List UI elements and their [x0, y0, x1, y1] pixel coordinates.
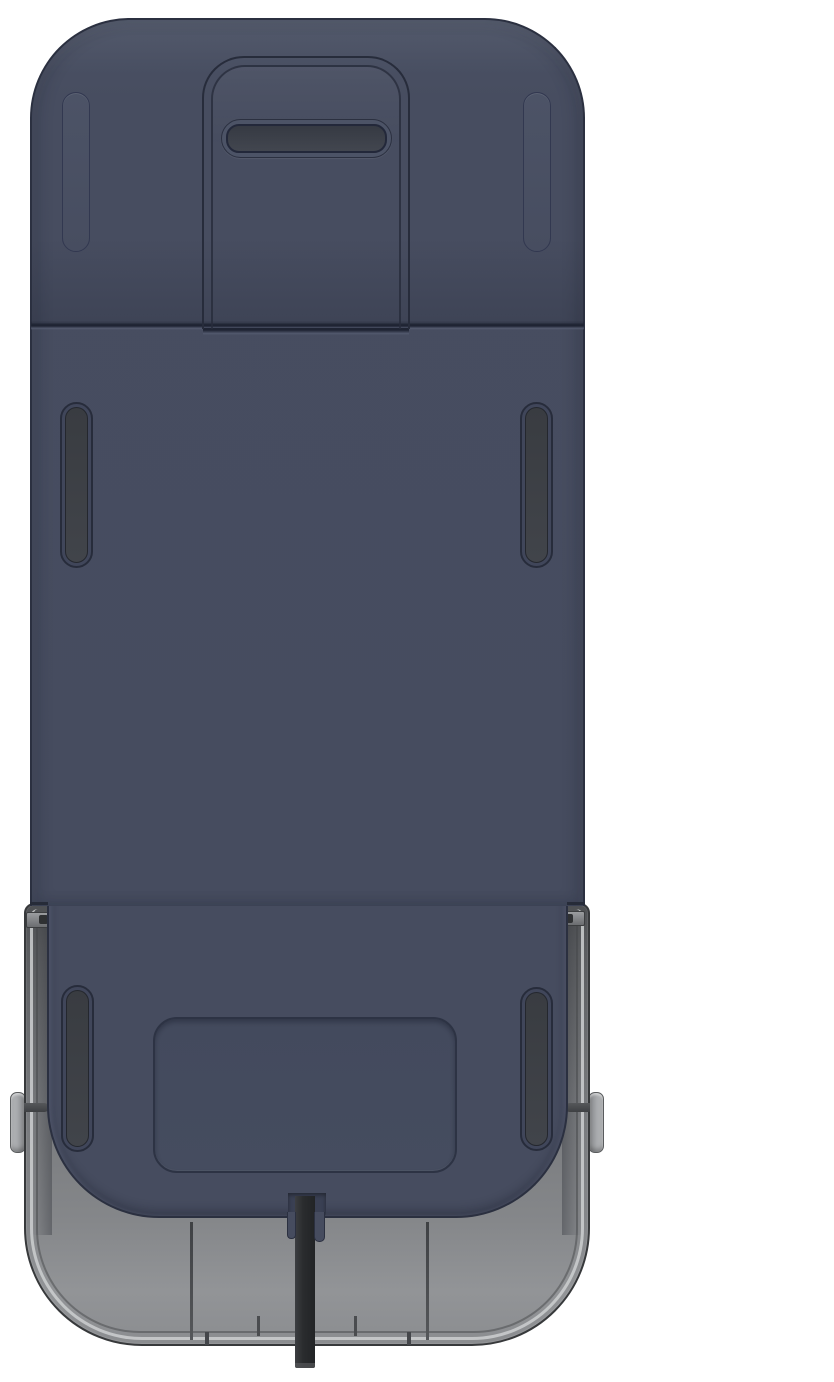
- cap-foot-left: [62, 92, 90, 252]
- vent-slot-bottom-left-opening: [66, 990, 89, 1147]
- vent-slot-top-right: [520, 402, 553, 568]
- tray-rim-tick-left: [205, 1332, 209, 1345]
- side-pin-left: [24, 1103, 49, 1112]
- handle-grip-ring: [221, 119, 392, 158]
- tray-front-seam-left: [190, 1222, 193, 1340]
- vent-slot-top-left: [60, 402, 93, 568]
- tray-rim-tick-right: [407, 1332, 411, 1345]
- vent-slot-top-left-opening: [65, 407, 88, 563]
- tray-front-notch-left: [257, 1316, 260, 1336]
- power-cable-tip: [295, 1363, 315, 1368]
- label-recess-panel: [153, 1017, 457, 1173]
- side-knob-right: [588, 1092, 604, 1153]
- vent-slot-bottom-left: [61, 985, 94, 1152]
- vent-slot-bottom-right-opening: [525, 992, 548, 1146]
- channel-bottom-seam: [203, 328, 409, 335]
- body-step-edge-left: [30, 902, 48, 905]
- vent-slot-top-right-opening: [525, 407, 548, 563]
- tray-front-seam-right: [426, 1222, 429, 1340]
- cap-foot-right: [523, 92, 551, 252]
- cable-exit-tab-left: [287, 1212, 296, 1239]
- vent-slot-bottom-right: [520, 987, 553, 1151]
- product-render-stage: [0, 0, 834, 1382]
- handle-channel-inner-groove: [211, 65, 401, 329]
- power-cable: [295, 1196, 315, 1368]
- side-pin-right: [565, 1103, 590, 1112]
- handle-grip-slot: [226, 124, 387, 153]
- cable-exit-tab-right: [314, 1212, 325, 1242]
- tray-front-notch-right: [354, 1316, 357, 1336]
- body-step-edge-right: [567, 902, 585, 905]
